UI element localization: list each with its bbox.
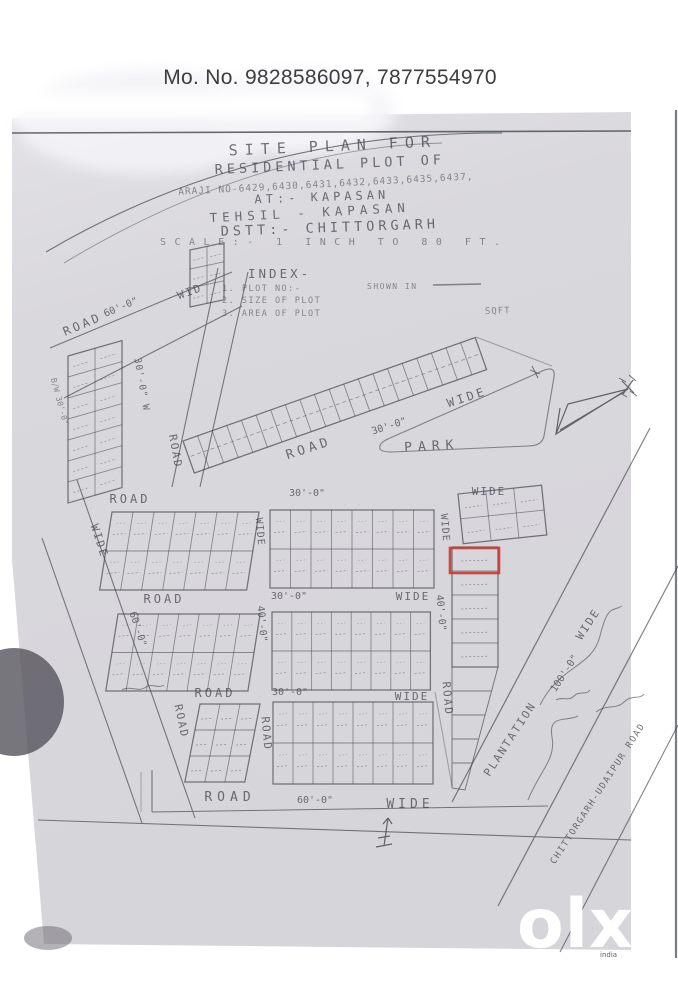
park-label: PARK	[404, 438, 460, 456]
olx-watermark: olx india	[517, 885, 634, 964]
site-plan-scan: SITE PLAN FOR RESIDENTIAL PLOT OF ARAJI …	[0, 0, 678, 999]
index-item3: 3. AREA OF PLOT	[222, 309, 321, 319]
road-width-label: 30'-0"	[289, 488, 325, 499]
olx-country-label: india	[600, 951, 617, 959]
phone-header: Mo. No. 9828586097, 7877554970	[0, 66, 660, 90]
road-label: ROAD	[144, 592, 185, 606]
road-width-label: 30'-0"	[271, 591, 307, 602]
road-width-label: 30'-0"	[272, 687, 308, 698]
listing-photo-page: Mo. No. 9828586097, 7877554970	[0, 0, 678, 999]
road-wide-label: WIDE	[472, 485, 507, 498]
index-dash-line	[433, 284, 481, 285]
index-item2: 2. SIZE OF PLOT	[222, 296, 321, 306]
road-label: ROAD	[195, 686, 236, 700]
road-wide-label: WIDE	[396, 590, 431, 603]
road-label: ROAD	[110, 492, 151, 506]
road-width-label: 60'-0"	[297, 795, 333, 806]
road-label: ROAD	[204, 790, 255, 805]
index-unit-label: SQFT	[485, 306, 511, 317]
index-item1-shown-in: SHOWN IN	[367, 282, 418, 291]
index-heading: INDEX-	[248, 266, 311, 281]
index-item1: 1. PLOT NO:-	[222, 284, 301, 294]
road-wide-label: WIDE	[395, 690, 430, 703]
shadow-blob-bottom-left	[24, 926, 72, 950]
road-wide-label: WIDE	[386, 797, 433, 812]
